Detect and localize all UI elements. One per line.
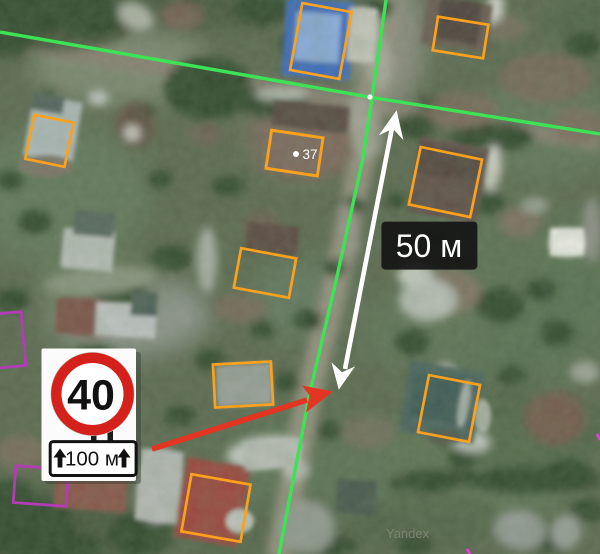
svg-text:37: 37 xyxy=(303,147,318,162)
svg-text:40: 40 xyxy=(67,372,115,420)
svg-text:50 м: 50 м xyxy=(396,228,462,264)
svg-text:Yandex: Yandex xyxy=(386,526,430,541)
svg-text:100 м: 100 м xyxy=(65,448,119,471)
